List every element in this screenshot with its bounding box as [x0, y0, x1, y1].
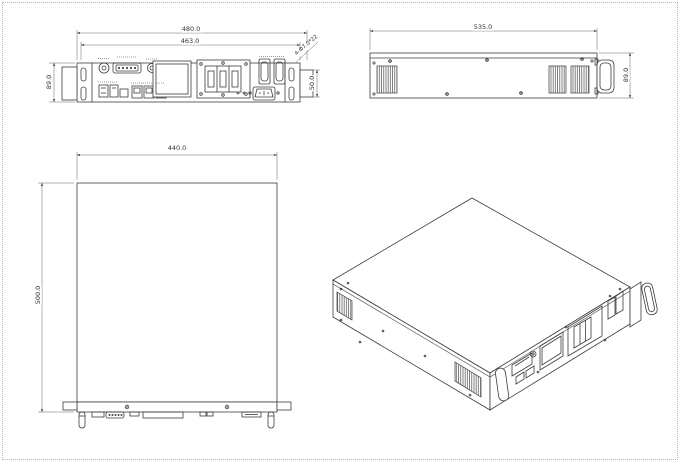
- top-handle-pins: [79, 412, 274, 428]
- dim-front-total-width: 480.0: [181, 26, 202, 33]
- drawing-sheet: 480.0 463.0 89.0 50.0 4-Φ7.0*22 535.0 89…: [0, 0, 680, 462]
- front-edge-strip: [77, 402, 277, 412]
- dim-top-width: 440.0: [167, 145, 188, 152]
- ear-wing-right: [277, 402, 291, 410]
- side-view: [370, 28, 634, 98]
- top-chassis-outline: [77, 183, 277, 402]
- dim-front-body-width: 463.0: [180, 38, 201, 45]
- iso-view: [333, 198, 658, 410]
- top-front-connectors: [92, 412, 261, 418]
- dim-front-height: 89.0: [46, 74, 53, 90]
- vent-grille-left: [377, 66, 397, 93]
- breaker-plate: [197, 60, 250, 98]
- side-handle: [595, 59, 614, 94]
- top-view: [38, 152, 291, 428]
- iso-ear-right: [630, 282, 641, 327]
- dim-side-length: 535.0: [473, 24, 494, 31]
- dim-front-handle-height: 50.0: [309, 75, 316, 91]
- vent-grille-right-1: [549, 66, 566, 93]
- ear-wing-left: [63, 402, 77, 410]
- handle-left: [62, 67, 77, 100]
- dim-top-depth: 500.0: [35, 285, 42, 306]
- drawing-canvas: [0, 0, 680, 462]
- lcd-screen: [153, 61, 191, 97]
- vent-grille-right-2: [571, 66, 589, 93]
- dim-side-height: 89.0: [623, 67, 630, 83]
